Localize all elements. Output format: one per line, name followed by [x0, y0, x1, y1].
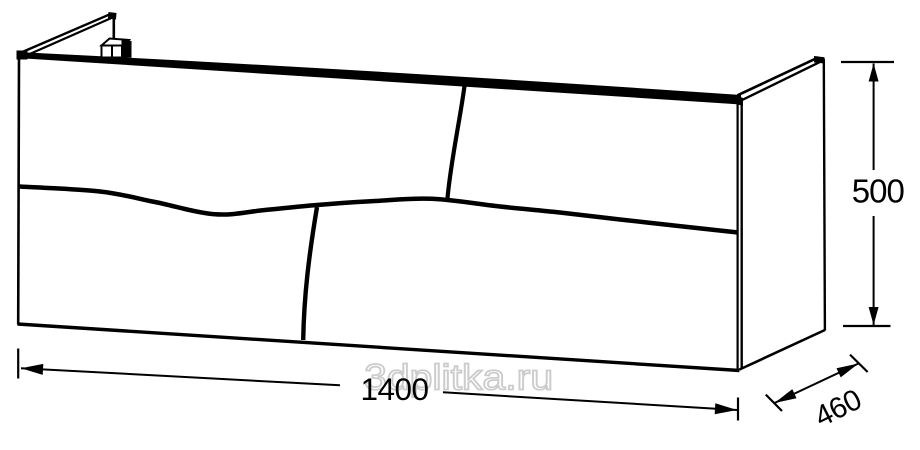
svg-text:460: 460 [809, 383, 866, 434]
svg-text:1400: 1400 [360, 371, 428, 407]
svg-text:500: 500 [852, 173, 905, 210]
